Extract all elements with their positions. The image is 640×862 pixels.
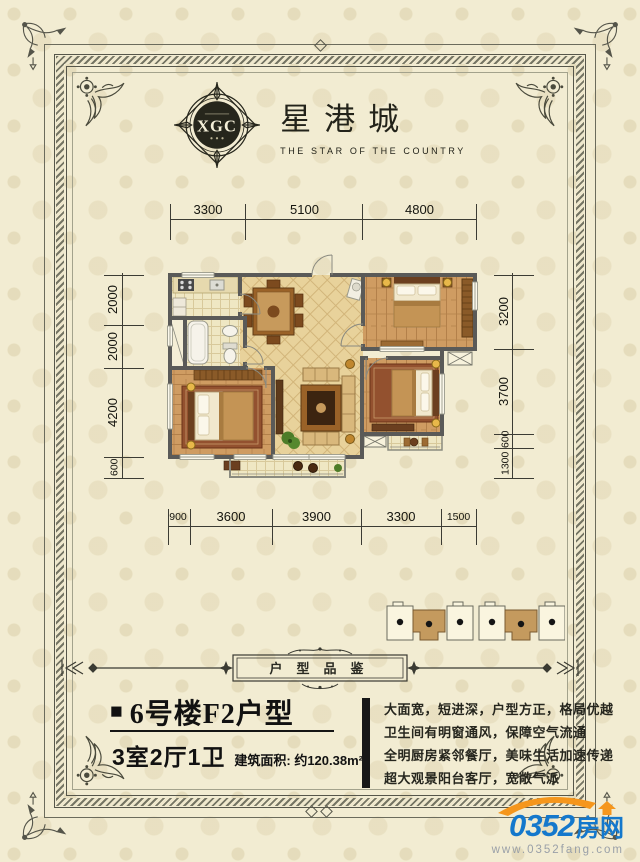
dim-label: 3900 [272,509,361,524]
watermark-number: 0352 [509,808,574,844]
unit-title: ■ 6号楼F2户型 [110,692,294,732]
outer-corner-flourish [20,20,76,76]
unit-subtitle: 3室2厅1卫 建筑面积: 约120.38m² [112,738,363,772]
logo: XGC 星港城 THE STAR OF THE COUNTRY [0,82,640,168]
rooms-text: 3室2厅1卫 [112,738,225,772]
frame-diamond-ornament [314,39,327,52]
logo-text-block: 星港城 THE STAR OF THE COUNTRY [280,94,466,156]
logo-tagline: THE STAR OF THE COUNTRY [280,146,466,156]
dim-label: 900 [165,511,191,523]
logo-emblem: XGC [174,82,260,168]
dim-label: 600 [498,430,513,448]
room-balcony [230,457,345,478]
watermark-brand: 0352 房网 [492,808,624,844]
dim-label: 600 [107,455,122,480]
title-bullet: ■ [110,700,123,724]
description-line: 卫生间有明窗通风，保障空气流通 [384,721,614,744]
logo-name: 星港城 [280,94,479,139]
dim-label: 4200 [105,368,120,457]
area-text: 建筑面积: 约120.38m² [234,750,363,769]
banner-label: 户型品鉴 [269,658,377,677]
description-block: 大面宽，短进深，户型方正，格局优越 卫生间有明窗通风，保障空气流通 全明厨房紧邻… [362,698,614,790]
title-underline [110,730,334,732]
dim-label: 3300 [170,202,246,217]
description-accent-bar [362,698,370,788]
dim-label: 2000 [105,275,120,325]
key-plan-block [387,602,473,640]
logo-monogram: XGC [197,117,237,136]
banner-title: 户型品鉴 [233,655,400,679]
dim-label: 3700 [496,349,511,434]
dim-label: 1300 [498,448,513,478]
description-line: 超大观景阳台客厅，宽敞气派 [384,767,614,790]
outer-corner-flourish [564,20,620,76]
dim-label: 2000 [105,325,120,368]
site-watermark: 0352 房网 www.0352fang.com [492,792,624,856]
description-line: 大面宽，短进深，户型方正，格局优越 [384,698,614,721]
unit-title-text: 6号楼F2户型 [130,692,294,732]
dim-label: 3200 [496,275,511,349]
watermark-url: www.0352fang.com [492,844,624,856]
description-lines: 大面宽，短进深，户型方正，格局优越 卫生间有明窗通风，保障空气流通 全明厨房紧邻… [384,698,614,790]
key-plan-block [479,602,565,640]
description-line: 全明厨房紧邻餐厅，美味生活加速传递 [384,744,614,767]
dim-label: 3600 [190,509,272,524]
dim-label: 1500 [441,511,476,523]
floorplan-drawing [166,254,478,494]
outer-corner-flourish [20,786,76,842]
dim-label: 4800 [363,202,476,217]
dim-label: 3300 [361,509,441,524]
dim-label: 5100 [246,202,363,217]
watermark-suffix: 房网 [576,808,624,843]
poster-page: { "logo": { "monogram": "XGC", "name": "… [0,0,640,862]
